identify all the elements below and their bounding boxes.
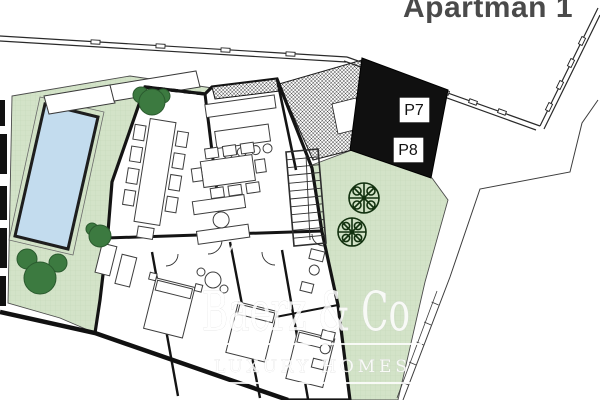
neighbor-wall-left — [0, 100, 7, 306]
parking-label-p8: P8 — [393, 137, 424, 163]
watermark-brand-text: Baerz & Co — [202, 280, 410, 343]
topiary-tree-icon — [338, 218, 366, 246]
topiary-tree-icon — [349, 183, 379, 213]
parking-label-p8-text: P8 — [398, 142, 418, 159]
site-plan-drawing: P7 P8 Apartman 1 Baerz & Co LUXURY HOMES — [0, 0, 600, 400]
apartment-title: Apartman 1 — [403, 0, 573, 24]
parking-label-p7: P7 — [399, 97, 430, 123]
floor-plan-page: P7 P8 Apartman 1 Baerz & Co LUXURY HOMES — [0, 0, 600, 400]
parking-label-p7-text: P7 — [404, 102, 424, 119]
watermark-tagline-text: LUXURY HOMES — [214, 357, 414, 377]
